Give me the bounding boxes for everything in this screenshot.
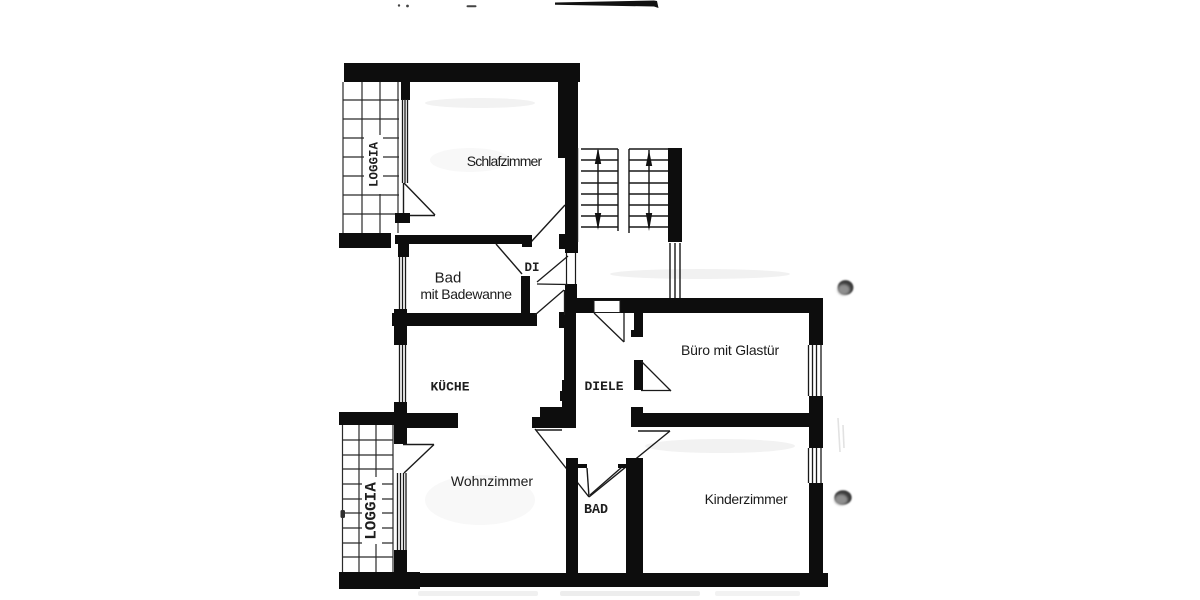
- svg-text:LOGGIA: LOGGIA: [363, 482, 381, 540]
- svg-text:Bad: Bad: [435, 270, 462, 287]
- svg-text:Wohnzimmer: Wohnzimmer: [451, 473, 534, 489]
- svg-text:BAD: BAD: [584, 503, 608, 518]
- svg-text:Kinderzimmer: Kinderzimmer: [705, 491, 788, 507]
- svg-text:DIELE: DIELE: [584, 379, 623, 394]
- svg-text:Büro mit Glastür: Büro mit Glastür: [681, 342, 779, 358]
- svg-text:KÜCHE: KÜCHE: [430, 379, 469, 395]
- svg-text:Schlafzimmer: Schlafzimmer: [467, 153, 543, 169]
- svg-text:LOGGIA: LOGGIA: [368, 142, 382, 188]
- svg-text:DI: DI: [524, 261, 539, 275]
- svg-text:mit Badewanne: mit Badewanne: [420, 286, 512, 302]
